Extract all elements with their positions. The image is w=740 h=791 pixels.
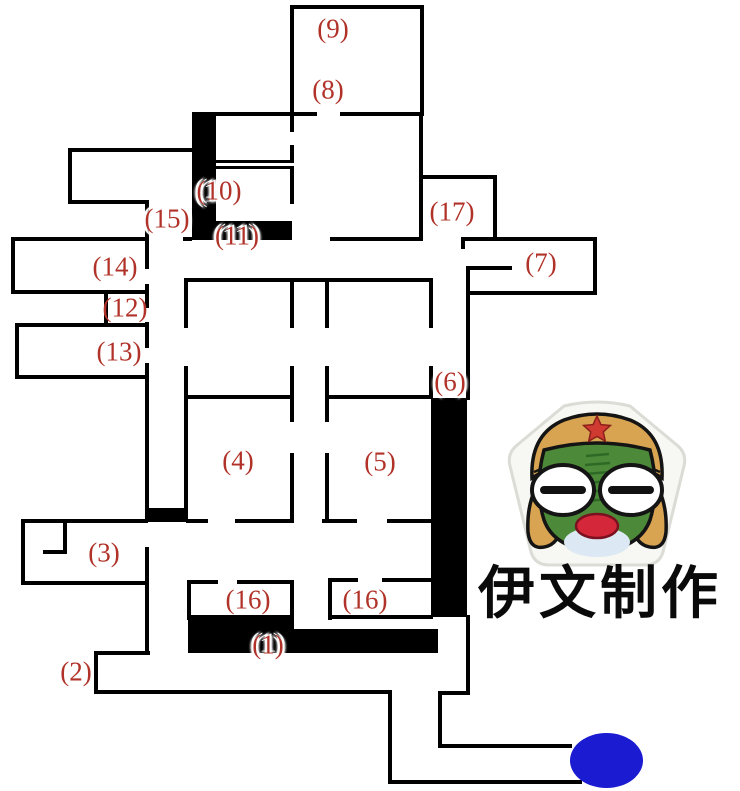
wall-segment — [463, 237, 595, 241]
wall-segment — [184, 366, 188, 512]
room-label-10: (10) — [197, 178, 242, 205]
room-label-9: (9) — [317, 16, 348, 43]
wall-segment — [237, 580, 294, 584]
wall-segment — [290, 5, 424, 9]
wall-segment — [15, 375, 149, 379]
wall-segment — [325, 453, 329, 523]
wall-segment — [420, 5, 424, 116]
wall-segment — [63, 519, 67, 554]
mascot-eye-slit-left — [540, 486, 586, 494]
wall-segment — [438, 691, 442, 748]
wall-segment — [68, 148, 72, 204]
wall-segment — [390, 780, 582, 784]
room-label-5: (5) — [364, 449, 395, 476]
room-label-15: (15) — [145, 206, 190, 233]
wall-segment — [186, 519, 208, 523]
wall-segment — [145, 322, 149, 348]
wall-segment — [387, 519, 433, 523]
room-label-7: (7) — [525, 250, 556, 277]
wall-segment — [325, 278, 329, 328]
mascot-mouth — [576, 514, 618, 538]
black-block — [431, 398, 467, 617]
wall-segment — [145, 363, 149, 510]
wall-segment — [290, 395, 294, 422]
wall-segment — [21, 581, 149, 585]
mascot-eye-slit-right — [608, 486, 654, 494]
room-label-3: (3) — [88, 540, 119, 567]
wall-segment — [325, 395, 433, 399]
wall-segment — [388, 690, 392, 784]
wall-segment — [461, 237, 465, 249]
wall-segment — [419, 175, 497, 179]
wall-segment — [96, 690, 392, 694]
wall-segment — [466, 266, 470, 400]
wall-segment — [184, 278, 188, 328]
wall-segment — [187, 580, 191, 620]
wall-segment — [290, 453, 294, 523]
room-label-13: (13) — [97, 339, 142, 366]
wall-segment — [325, 395, 329, 422]
wall-segment — [216, 112, 317, 116]
room-label-16-right: (16) — [343, 587, 388, 614]
black-block — [145, 508, 188, 522]
wall-segment — [322, 519, 357, 523]
wall-segment — [466, 266, 512, 270]
wall-segment — [216, 166, 292, 169]
wall-segment — [235, 519, 292, 523]
wall-segment — [290, 580, 294, 620]
wall-segment — [70, 148, 192, 152]
wall-segment — [189, 580, 218, 584]
wall-segment — [186, 395, 292, 399]
room-label-4: (4) — [222, 448, 253, 475]
wall-segment — [216, 160, 292, 163]
room-label-6: (6) — [434, 369, 465, 396]
room-label-11: (11) — [215, 223, 259, 250]
wall-segment — [328, 615, 433, 619]
wall-segment — [185, 278, 433, 282]
wall-segment — [145, 547, 149, 655]
exit-marker — [570, 733, 643, 788]
room-label-1: (1) — [252, 632, 283, 659]
wall-segment — [94, 651, 98, 694]
room-label-12: (12) — [103, 295, 148, 322]
wall-segment — [330, 237, 421, 241]
wall-segment — [466, 615, 470, 695]
wall-segment — [466, 291, 597, 295]
wall-segment — [340, 112, 422, 116]
wall-segment — [183, 237, 192, 241]
wall-segment — [13, 237, 146, 241]
wall-segment — [493, 175, 497, 241]
wall-segment — [593, 237, 597, 295]
wall-segment — [23, 519, 148, 523]
credit-watermark-text: 伊文制作 — [478, 566, 722, 623]
wall-segment — [290, 166, 294, 204]
wall-segment — [290, 112, 294, 132]
wall-segment — [438, 744, 572, 748]
wall-segment — [290, 5, 294, 115]
map-canvas: (9)(8)(10)(15)(11)(17)(14)(7)(12)(13)(6)… — [0, 0, 740, 791]
frog-mascot-logo — [502, 396, 692, 574]
wall-segment — [15, 323, 19, 379]
room-label-16-left: (16) — [226, 587, 271, 614]
wall-segment — [15, 323, 149, 327]
wall-segment — [43, 550, 67, 554]
room-label-2: (2) — [60, 659, 91, 686]
black-block — [294, 629, 438, 653]
wall-segment — [328, 578, 332, 620]
room-label-14: (14) — [93, 254, 138, 281]
wall-segment — [21, 519, 25, 585]
wall-segment — [328, 578, 358, 582]
wall-segment — [290, 145, 294, 163]
wall-segment — [68, 200, 149, 204]
wall-segment — [429, 278, 433, 328]
wall-segment — [11, 237, 15, 294]
wall-segment — [438, 691, 470, 695]
room-label-17: (17) — [430, 199, 475, 226]
room-label-8: (8) — [312, 77, 343, 104]
wall-segment — [382, 578, 433, 582]
wall-segment — [290, 278, 294, 328]
wall-segment — [94, 651, 150, 655]
